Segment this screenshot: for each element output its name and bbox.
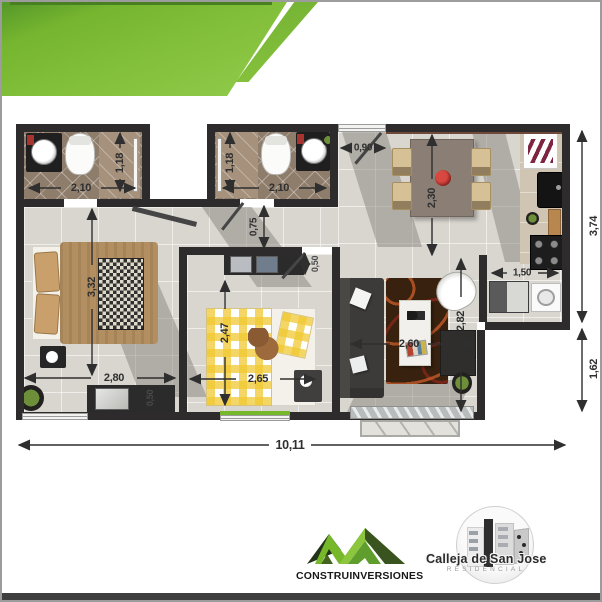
dimension-annotations: 1,18 2,10 1,18 2,10 0,90 [2, 2, 602, 602]
dim-living-length: 2,82 [455, 259, 467, 411]
dim-bath2-width: 2,10 [223, 182, 326, 194]
svg-text:10,11: 10,11 [275, 438, 304, 452]
floor-plan: 1,18 2,10 1,18 2,10 0,90 [2, 2, 600, 600]
dim-dining-depth: 2,30 [426, 135, 438, 255]
svg-text:2,60: 2,60 [399, 338, 419, 350]
svg-text:0,75: 0,75 [249, 217, 260, 236]
dim-closet1-depth: 0,50 [145, 390, 155, 407]
dim-hall-width: 0,75 [249, 206, 265, 248]
svg-text:2,47: 2,47 [219, 323, 231, 343]
svg-text:1,18: 1,18 [114, 153, 126, 173]
svg-text:2,80: 2,80 [104, 372, 124, 384]
dim-bed1-width: 2,80 [25, 372, 175, 384]
svg-text:2,82: 2,82 [455, 311, 467, 331]
dim-bath1-width: 2,10 [29, 182, 135, 194]
dim-laundry-width: 1,50 [492, 268, 558, 279]
svg-text:2,30: 2,30 [426, 188, 438, 208]
dim-bed1-length: 3,32 [86, 209, 98, 375]
svg-text:0,50: 0,50 [145, 390, 155, 407]
dim-bed2-width: 2,65 [190, 373, 315, 385]
dim-bath2-shower-depth: 1,18 [224, 133, 236, 191]
svg-text:0,50: 0,50 [310, 256, 320, 273]
svg-text:1,62: 1,62 [588, 359, 600, 379]
svg-text:3,32: 3,32 [86, 277, 98, 297]
dim-total-width: 10,11 [19, 438, 565, 452]
dim-bath1-shower-depth: 1,18 [114, 133, 126, 191]
svg-text:1,18: 1,18 [224, 153, 236, 173]
svg-text:1,50: 1,50 [513, 268, 532, 279]
svg-text:2,65: 2,65 [248, 373, 268, 385]
svg-text:0,90: 0,90 [354, 143, 373, 154]
floor-plan-poster: 1,18 2,10 1,18 2,10 0,90 [0, 0, 602, 602]
dim-kitchen-side: 3,74 [582, 131, 600, 322]
dim-bed2-length: 2,47 [219, 281, 231, 405]
dim-closet2-depth: 0,50 [305, 254, 320, 274]
svg-text:2,10: 2,10 [71, 182, 91, 194]
dim-terrace-side: 1,62 [582, 329, 600, 411]
dim-entry-width: 0,90 [341, 143, 385, 154]
dim-living-width: 2,60 [351, 338, 473, 350]
svg-text:3,74: 3,74 [588, 215, 600, 236]
svg-text:2,10: 2,10 [269, 182, 289, 194]
